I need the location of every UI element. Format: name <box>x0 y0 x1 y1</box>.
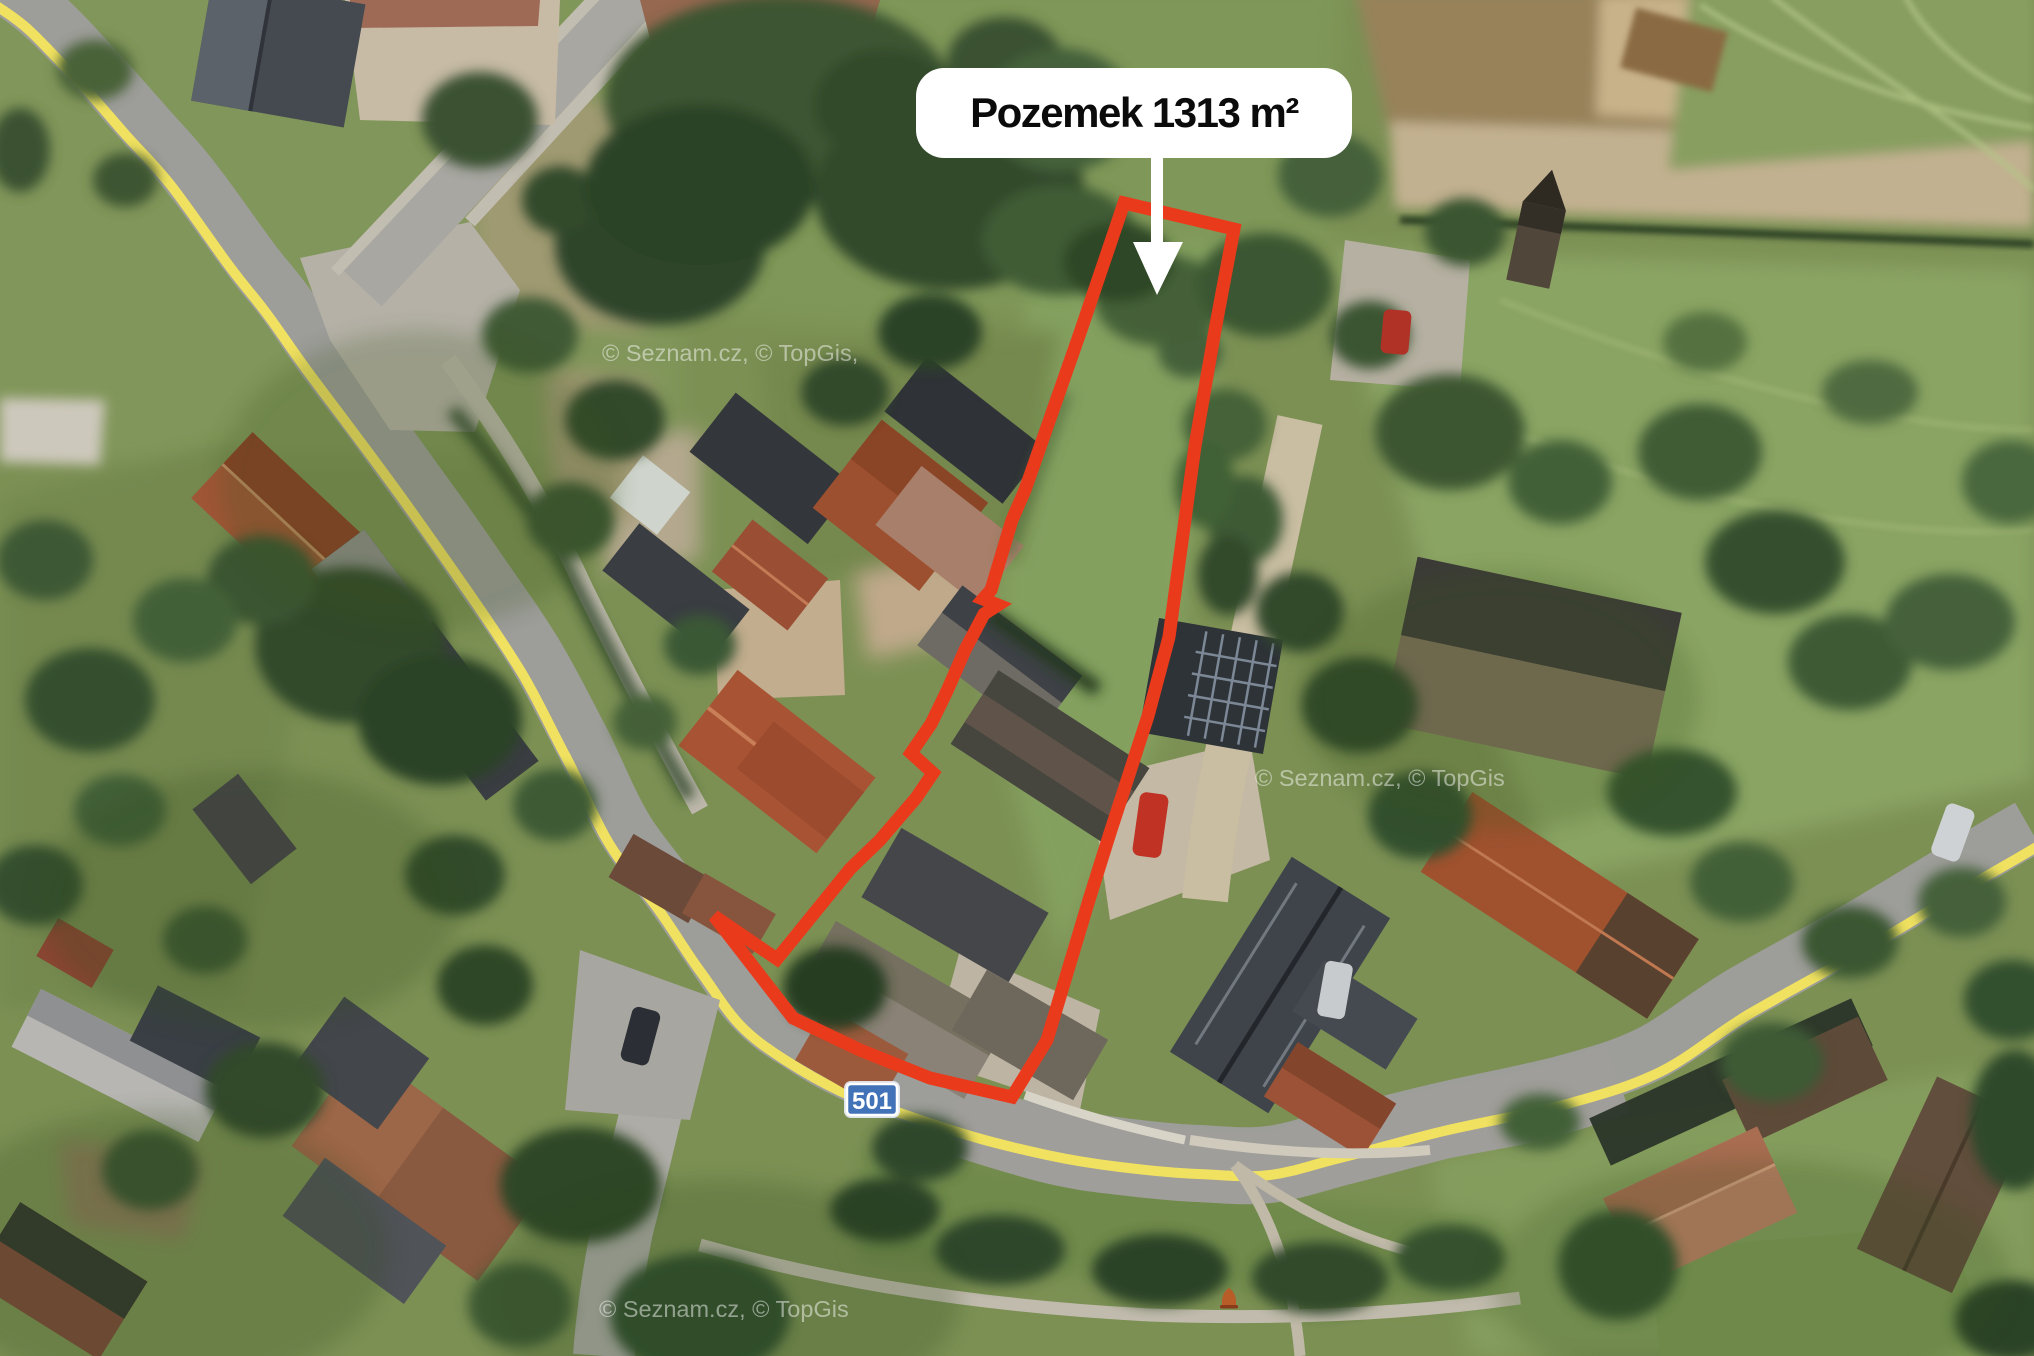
svg-text:© Seznam.cz, © TopGis,: © Seznam.cz, © TopGis, <box>602 340 858 366</box>
svg-text:Pozemek 1313 m²: Pozemek 1313 m² <box>970 89 1299 136</box>
svg-text:© Seznam.cz, © TopGis: © Seznam.cz, © TopGis <box>1255 765 1505 791</box>
svg-text:© Seznam.cz, © TopGis: © Seznam.cz, © TopGis <box>599 1296 849 1322</box>
svg-text:501: 501 <box>852 1088 892 1115</box>
